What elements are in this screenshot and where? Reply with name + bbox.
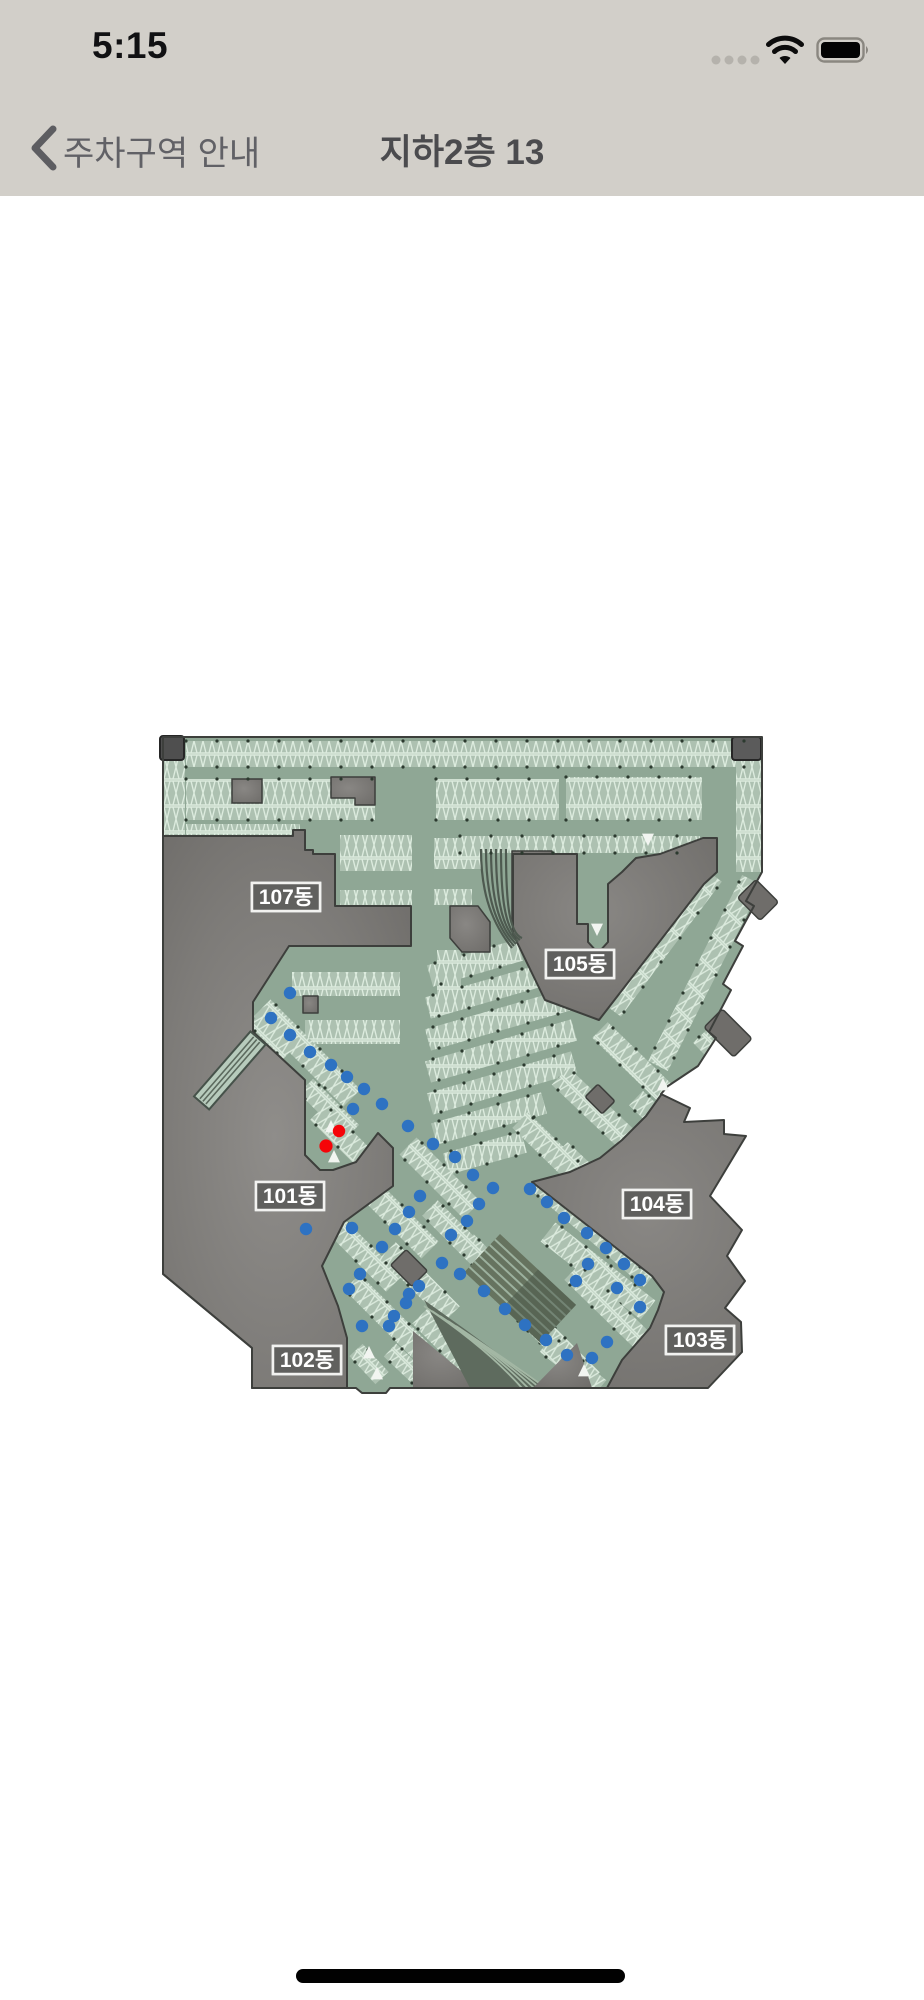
svg-text:105동: 105동: [553, 953, 607, 976]
svg-text:103동: 103동: [673, 1329, 727, 1352]
svg-text:101동: 101동: [263, 1185, 317, 1208]
svg-text:102동: 102동: [280, 1349, 334, 1372]
svg-text:104동: 104동: [630, 1193, 684, 1216]
svg-text:107동: 107동: [259, 886, 313, 909]
